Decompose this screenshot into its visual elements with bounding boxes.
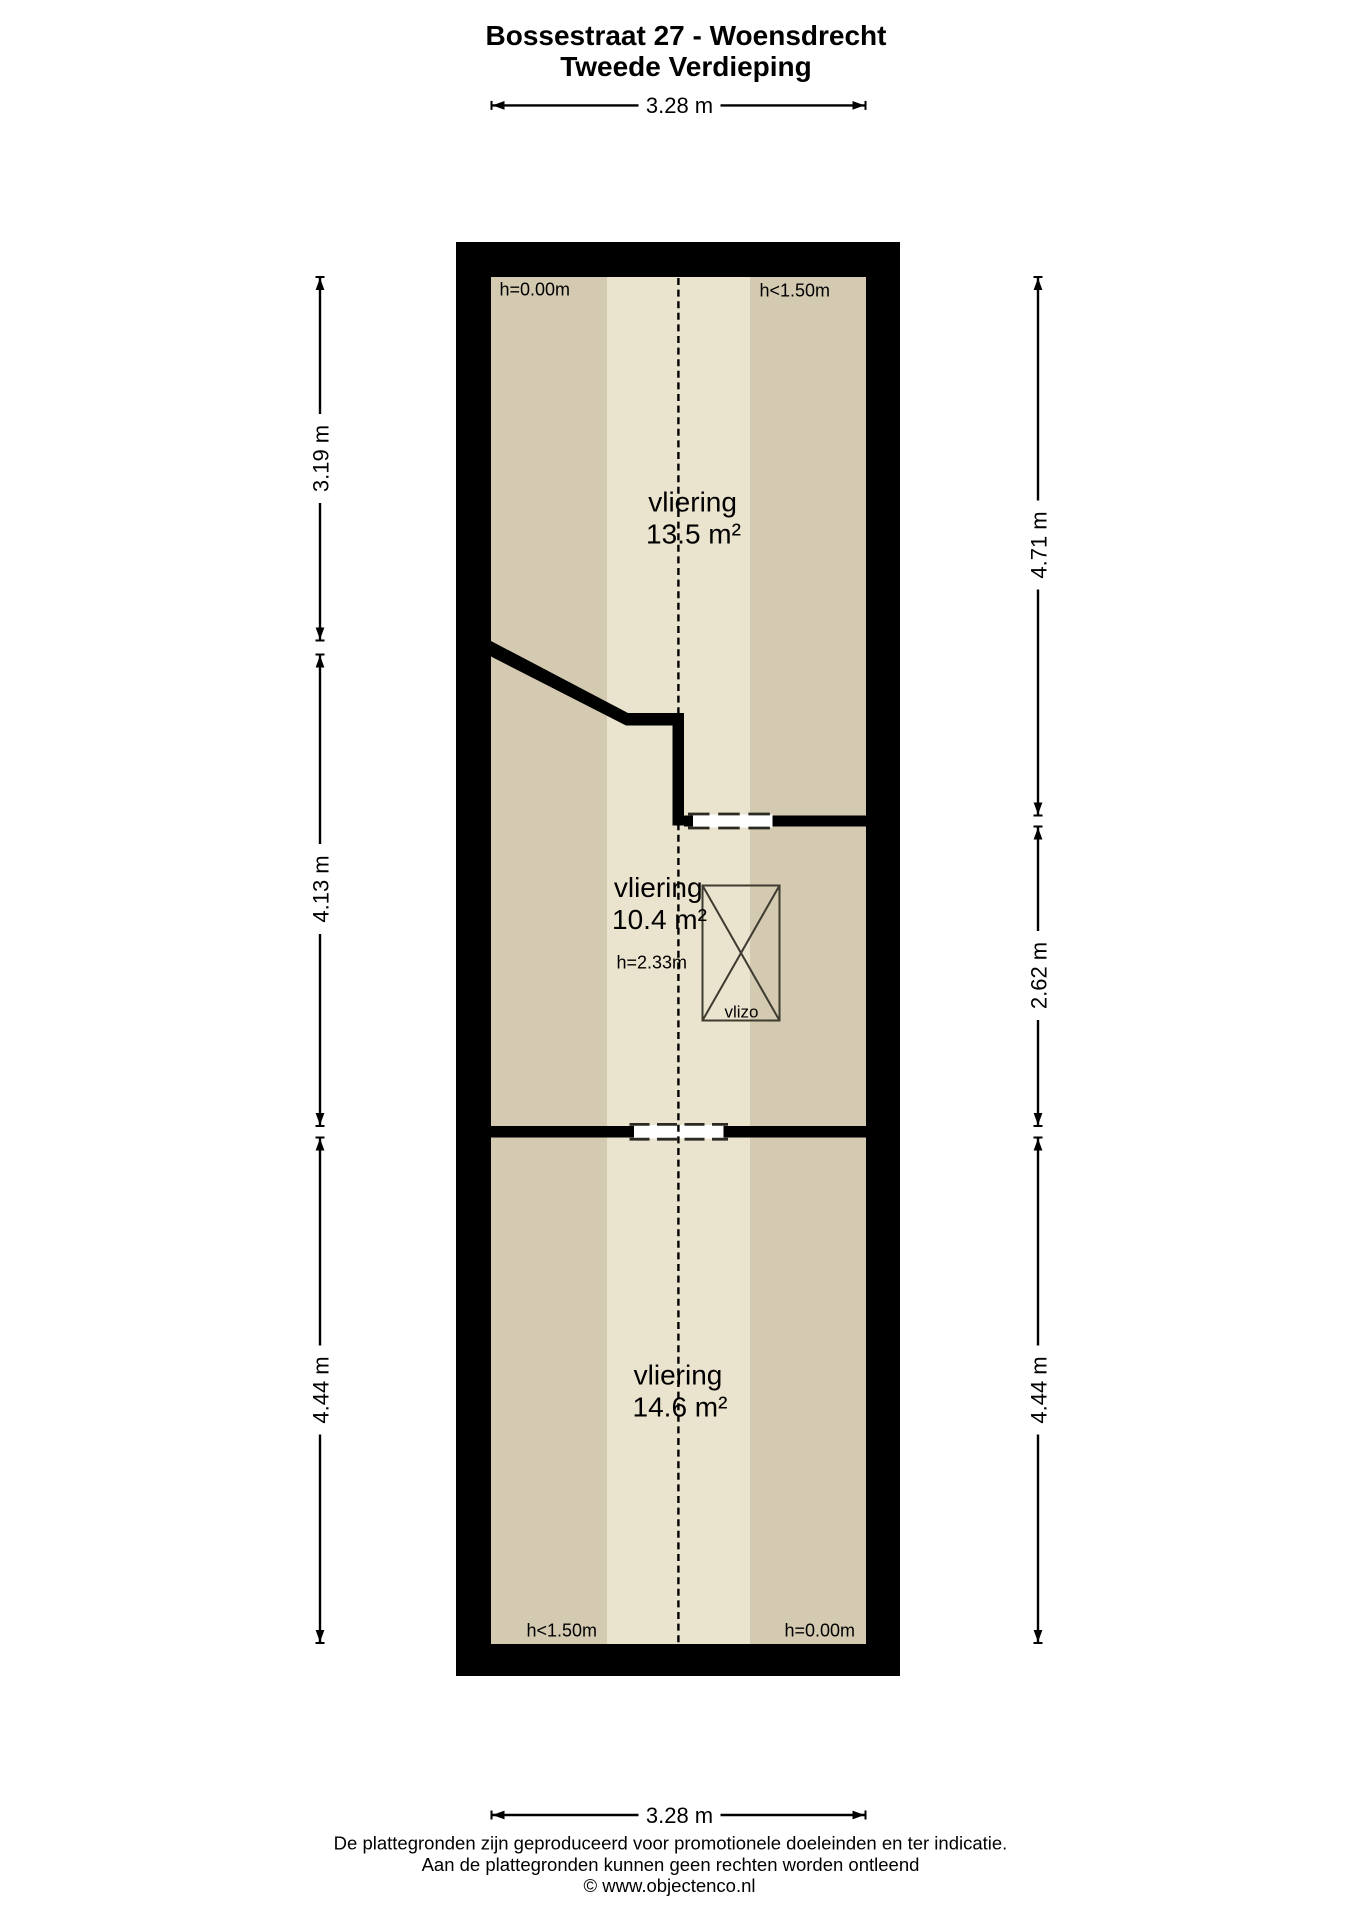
svg-text:4.13 m: 4.13 m <box>309 855 334 922</box>
svg-text:h=0.00m: h=0.00m <box>785 1621 856 1641</box>
svg-text:4.71 m: 4.71 m <box>1027 511 1052 578</box>
svg-text:vlizo: vlizo <box>724 1003 758 1022</box>
svg-text:Aan de plattegronden kunnen ge: Aan de plattegronden kunnen geen rechten… <box>422 1854 920 1875</box>
svg-text:De plattegronden zijn geproduc: De plattegronden zijn geproduceerd voor … <box>334 1833 1008 1854</box>
svg-text:h<1.50m: h<1.50m <box>527 1621 598 1641</box>
svg-text:vliering: vliering <box>614 872 703 903</box>
svg-text:h<1.50m: h<1.50m <box>760 281 831 301</box>
svg-text:h=0.00m: h=0.00m <box>500 280 571 300</box>
svg-text:h=2.33m: h=2.33m <box>617 953 688 973</box>
svg-text:Tweede Verdieping: Tweede Verdieping <box>560 51 812 82</box>
svg-text:4.44 m: 4.44 m <box>309 1356 334 1423</box>
svg-text:13.5 m²: 13.5 m² <box>646 519 741 550</box>
svg-text:vliering: vliering <box>634 1360 723 1391</box>
svg-text:Bossestraat 27 - Woensdrecht: Bossestraat 27 - Woensdrecht <box>486 20 887 51</box>
svg-text:3.19 m: 3.19 m <box>309 425 334 492</box>
svg-text:vliering: vliering <box>648 487 737 518</box>
svg-text:© www.objectenco.nl: © www.objectenco.nl <box>584 1875 756 1896</box>
svg-text:4.44 m: 4.44 m <box>1027 1356 1052 1423</box>
svg-text:10.4 m²: 10.4 m² <box>612 904 707 935</box>
svg-text:3.28 m: 3.28 m <box>646 93 713 118</box>
svg-text:14.6 m²: 14.6 m² <box>633 1392 728 1423</box>
svg-text:2.62 m: 2.62 m <box>1027 942 1052 1009</box>
svg-text:3.28 m: 3.28 m <box>646 1803 713 1828</box>
